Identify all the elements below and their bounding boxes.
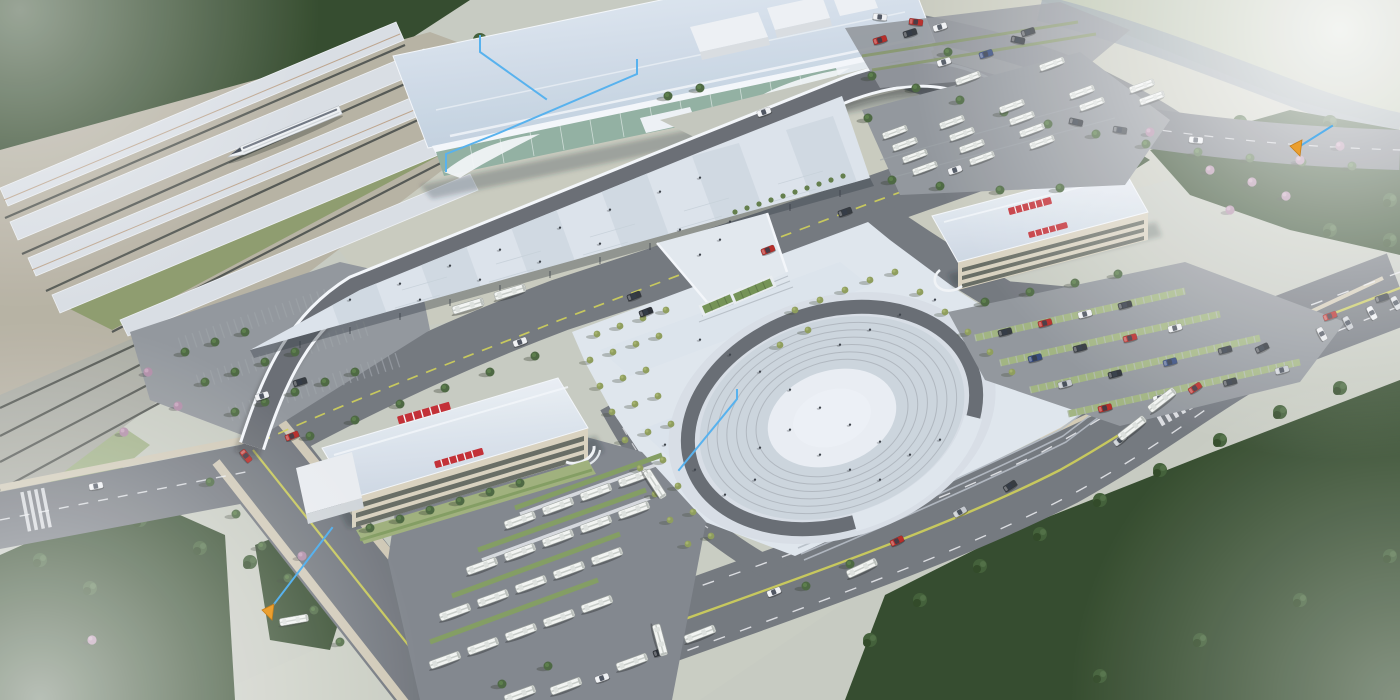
- atmospheric-haze: [0, 0, 1400, 700]
- architectural-rendering: [0, 0, 1400, 700]
- aerial-render-canvas: [0, 0, 1400, 700]
